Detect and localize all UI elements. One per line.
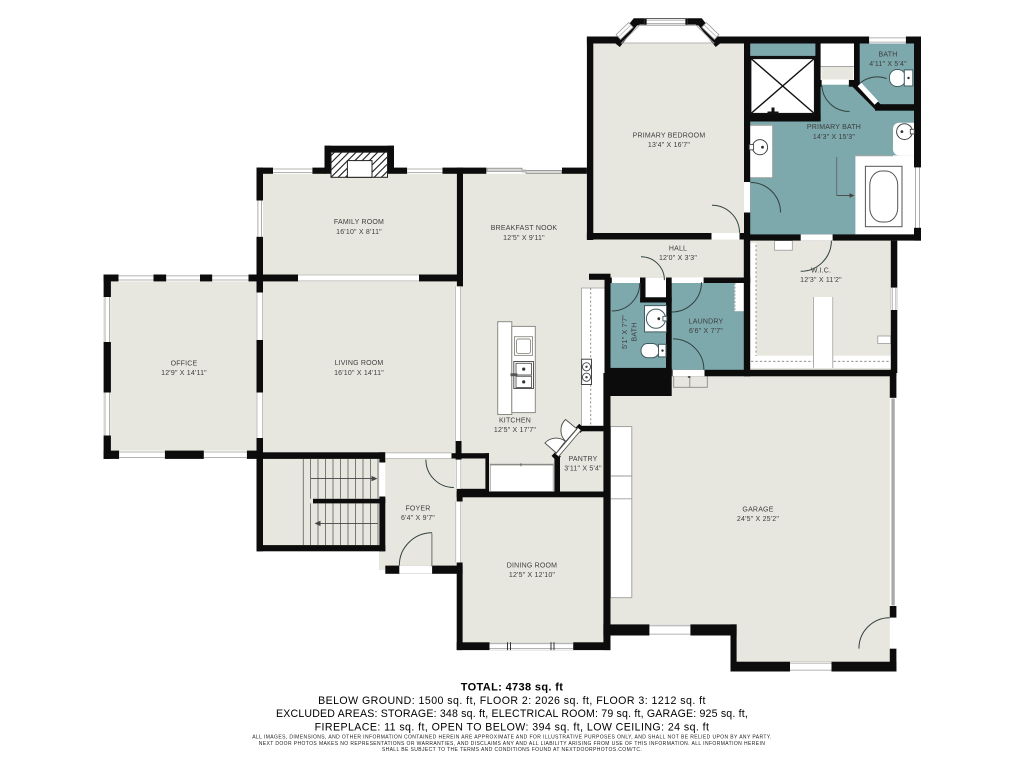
svg-text:16'10" X 8'11": 16'10" X 8'11" <box>336 229 382 236</box>
svg-text:BELOW GROUND: 1500 sq. ft, FLO: BELOW GROUND: 1500 sq. ft, FLOOR 2: 2026… <box>318 695 706 707</box>
svg-text:TOTAL: 4738 sq. ft: TOTAL: 4738 sq. ft <box>461 682 563 694</box>
svg-text:OFFICE: OFFICE <box>171 361 198 368</box>
svg-text:6'4" X 9'7": 6'4" X 9'7" <box>401 515 435 522</box>
svg-text:BATH: BATH <box>632 323 639 342</box>
svg-text:FOYER: FOYER <box>405 506 430 513</box>
svg-text:PRIMARY BEDROOM: PRIMARY BEDROOM <box>633 133 706 140</box>
svg-text:24'5" X 25'2": 24'5" X 25'2" <box>737 516 779 523</box>
svg-text:FAMILY ROOM: FAMILY ROOM <box>334 219 384 226</box>
svg-text:W.I.C.: W.I.C. <box>811 268 831 275</box>
svg-text:BREAKFAST NOOK: BREAKFAST NOOK <box>491 225 558 232</box>
svg-text:14'3" X 15'3": 14'3" X 15'3" <box>813 134 855 141</box>
svg-text:6'6" X 7'7": 6'6" X 7'7" <box>689 328 723 335</box>
svg-text:12'5" X 9'11": 12'5" X 9'11" <box>503 235 545 242</box>
svg-text:12'0" X 3'3": 12'0" X 3'3" <box>659 255 697 262</box>
svg-text:KITCHEN: KITCHEN <box>499 418 531 425</box>
svg-text:EXCLUDED AREAS: STORAGE: 348 s: EXCLUDED AREAS: STORAGE: 348 sq. ft, ELE… <box>276 708 748 720</box>
svg-text:FIREPLACE: 11 sq. ft, OPEN TO: FIREPLACE: 11 sq. ft, OPEN TO BELOW: 394… <box>315 721 710 733</box>
svg-text:PANTRY: PANTRY <box>569 456 598 463</box>
svg-text:PRIMARY BATH: PRIMARY BATH <box>807 124 861 131</box>
svg-text:16'10" X 14'11": 16'10" X 14'11" <box>334 370 384 377</box>
svg-text:3'11" X 5'4": 3'11" X 5'4" <box>564 466 602 473</box>
svg-text:5'1" X 7'7": 5'1" X 7'7" <box>622 315 629 349</box>
svg-text:4'11" X 5'4": 4'11" X 5'4" <box>869 61 907 68</box>
svg-text:NEXT DOOR PHOTOS MAKES NO REPR: NEXT DOOR PHOTOS MAKES NO REPRESENTATION… <box>259 741 766 747</box>
svg-text:GARAGE: GARAGE <box>742 507 773 514</box>
svg-text:HALL: HALL <box>669 246 687 253</box>
svg-text:DINING ROOM: DINING ROOM <box>507 563 557 570</box>
svg-text:LIVING ROOM: LIVING ROOM <box>335 360 384 367</box>
svg-text:12'9" X 14'11": 12'9" X 14'11" <box>161 370 207 377</box>
svg-text:BATH: BATH <box>879 52 898 59</box>
svg-text:LAUNDRY: LAUNDRY <box>689 319 724 326</box>
svg-text:12'5" X 17'7": 12'5" X 17'7" <box>494 427 536 434</box>
svg-text:SHALL BE SUBJECT TO THE TERMS: SHALL BE SUBJECT TO THE TERMS AND CONDIT… <box>382 747 642 753</box>
svg-text:12'5" X 12'10": 12'5" X 12'10" <box>509 572 556 579</box>
svg-text:12'3" X 11'2": 12'3" X 11'2" <box>800 277 842 284</box>
svg-text:13'4" X 16'7": 13'4" X 16'7" <box>648 142 690 149</box>
svg-text:ALL IMAGES, DIMENSIONS, AND OT: ALL IMAGES, DIMENSIONS, AND OTHER INFORM… <box>252 735 771 741</box>
